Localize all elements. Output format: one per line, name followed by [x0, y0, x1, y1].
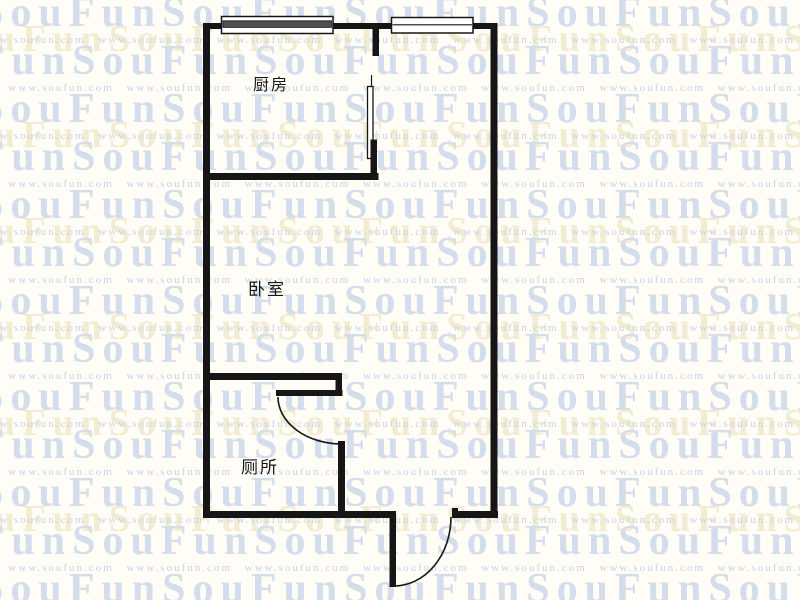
toilet-door-swing-arc [278, 397, 342, 444]
right-wall [491, 23, 498, 518]
toilet-top-wall [203, 373, 342, 380]
bottom-wall-right [452, 511, 498, 518]
entry-door-leaf [390, 514, 397, 587]
kitchen-partition-stub [373, 29, 380, 56]
floorplan-drawing: 厨房 卧室 厕所 [0, 0, 800, 600]
bottom-wall-left [203, 511, 396, 518]
toilet-door-hinge-stub [336, 373, 343, 391]
toilet-label: 厕所 [241, 458, 279, 477]
bedroom-label: 卧室 [248, 280, 286, 299]
toilet-door-leaf [276, 390, 343, 396]
toilet-right-wall [338, 441, 345, 512]
entry-door-swing-arc [394, 517, 452, 586]
kitchen-window-band [223, 21, 332, 28]
kitchen-label: 厨房 [253, 76, 289, 94]
floorplan-page: SouFunSouFunSouFunSouFunSouFunSouFunSouF… [0, 0, 800, 600]
kitchen-partition-lower [371, 140, 378, 180]
kitchen-bottom-wall [203, 173, 379, 180]
left-wall [203, 23, 210, 518]
